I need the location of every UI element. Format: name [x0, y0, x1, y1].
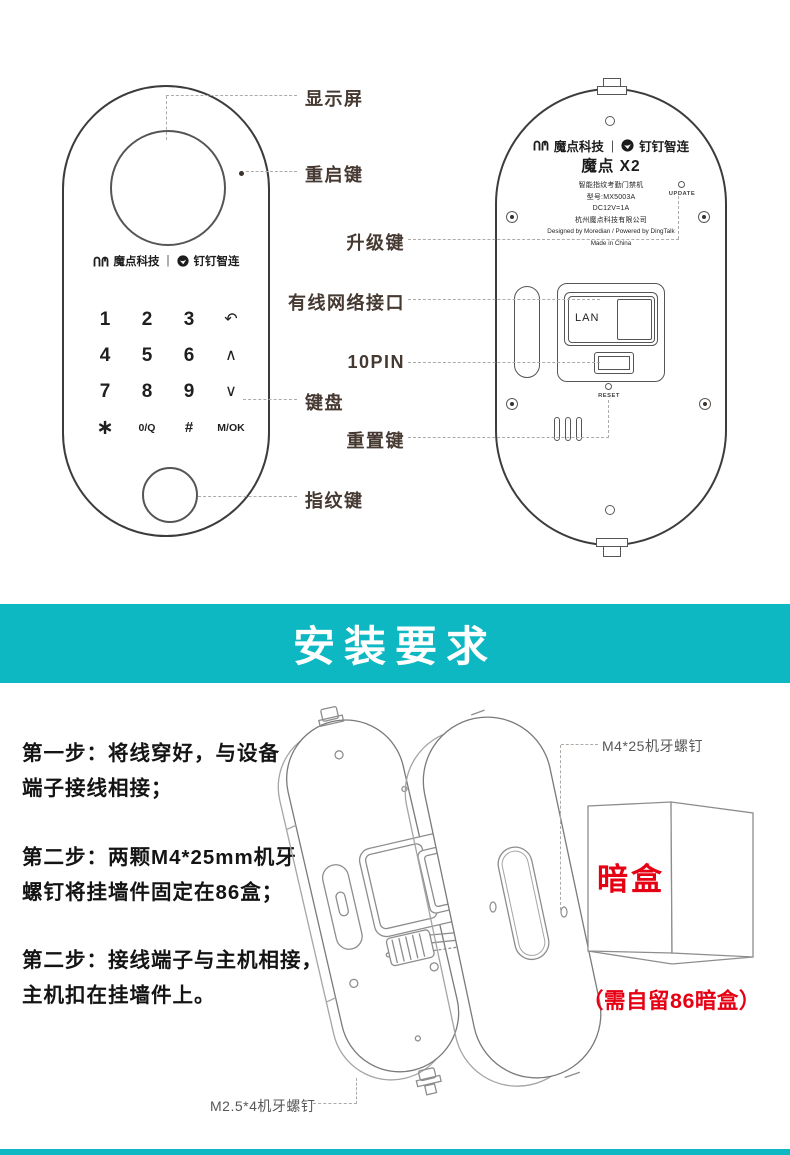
restart-callout-line [246, 171, 297, 172]
camera-display-circle [110, 130, 226, 246]
step-1: 第一步：将线穿好，与设备 端子接线相接； [22, 737, 280, 806]
step-3-line-2: 主机扣在挂墙件上。 [22, 984, 216, 1007]
m25-screw-line-h [313, 1103, 357, 1104]
brand-separator: | [167, 255, 170, 267]
back-device: 魔点科技 | 钉钉智连 魔点 X2 智能指纹考勤门禁机 型号:MX5003A D… [495, 88, 727, 546]
bottom-mount-tab [603, 546, 621, 557]
lan-port: LAN [564, 292, 658, 346]
upgrade-callout-line-v [678, 196, 679, 239]
back-brand-row: 魔点科技 | 钉钉智连 [497, 136, 725, 155]
key-7: 7 [84, 374, 126, 410]
reset-hole [605, 383, 612, 390]
banner-title: 安装要求 [293, 613, 497, 674]
lan-port-socket [617, 299, 652, 340]
ethernet-callout-line [408, 299, 600, 300]
step-3-line-1: 第二步：接线端子与主机相接， [22, 949, 323, 972]
front-device: 魔点科技 | 钉钉智连 1 2 3 ↶ 4 5 6 ∧ 7 8 9 ∨ ∗ 0/… [62, 85, 270, 537]
m25-screw-label: M2.5*4机牙螺钉 [210, 1096, 315, 1116]
reset-label: RESET [593, 393, 625, 399]
brand-separator: | [611, 139, 614, 153]
key-3: 3 [168, 302, 210, 338]
callout-display: 显示屏 [305, 85, 364, 111]
fingerprint-callout-line [198, 496, 297, 497]
dingtalk-logo-icon [621, 139, 634, 152]
top-mount-tab-flange [597, 86, 627, 95]
brand-dingtalk: 钉钉智连 [194, 253, 240, 269]
step-3: 第二步：接线端子与主机相接， 主机扣在挂墙件上。 [22, 944, 323, 1013]
step-1-line-1: 第一步：将线穿好，与设备 [22, 742, 280, 765]
info-line: Designed by Moredian / Powered by DingTa… [497, 226, 725, 238]
upgrade-callout-line-h [408, 239, 679, 240]
key-hash: # [168, 410, 210, 446]
junction-box-note: （需自留86暗盒） [582, 984, 761, 1015]
m25-screw-line-v [356, 1078, 357, 1104]
bottom-screw-hole [605, 505, 615, 515]
info-line: DC12V=1A [497, 203, 725, 215]
update-label: UPDATE [663, 191, 701, 197]
callout-restart: 重启键 [305, 161, 364, 187]
front-brand-row: 魔点科技 | 钉钉智连 [64, 253, 268, 269]
callout-fingerprint: 指纹键 [305, 487, 364, 513]
restart-hole [239, 171, 244, 176]
display-callout-line-h [166, 95, 297, 96]
lan-panel: LAN [557, 283, 665, 382]
keypad: 1 2 3 ↶ 4 5 6 ∧ 7 8 9 ∨ ∗ 0/Q # M/OK [84, 302, 252, 446]
key-star: ∗ [84, 410, 126, 446]
key-8: 8 [126, 374, 168, 410]
update-hole [678, 181, 685, 188]
model-title: 魔点 X2 [497, 154, 725, 176]
step-1-line-2: 端子接线相接； [22, 777, 173, 800]
top-screw-hole [605, 116, 615, 126]
lower-left-screw-center [510, 402, 514, 406]
step-2-line-2: 螺钉将挂墙件固定在86盒； [22, 881, 283, 904]
key-back: ↶ [210, 302, 252, 338]
upper-left-screw-center [510, 215, 514, 219]
key-1: 1 [84, 302, 126, 338]
reset-callout-line-h [408, 437, 609, 438]
key-6: 6 [168, 338, 210, 374]
brand-moredian: 魔点科技 [554, 136, 604, 155]
section-banner: 安装要求 [0, 604, 790, 683]
key-mok: M/OK [210, 410, 252, 446]
brand-dingtalk: 钉钉智连 [639, 136, 689, 155]
m4-screw-label: M4*25机牙螺钉 [602, 736, 703, 756]
mounting-diagram [280, 698, 600, 1098]
key-9: 9 [168, 374, 210, 410]
lan-label: LAN [575, 312, 599, 324]
callout-upgrade: 升级键 [300, 229, 405, 255]
key-up: ∧ [210, 338, 252, 374]
step-2: 第二步：两颗M4*25mm机牙 螺钉将挂墙件固定在86盒； [22, 841, 297, 910]
key-down: ∨ [210, 374, 252, 410]
m4-screw-line-v [560, 745, 561, 910]
step-2-line-1: 第二步：两颗M4*25mm机牙 [22, 846, 297, 869]
upper-right-screw-center [702, 215, 706, 219]
brand-moredian: 魔点科技 [114, 253, 160, 269]
key-2: 2 [126, 302, 168, 338]
moredian-logo-icon [93, 256, 109, 267]
callout-ethernet: 有线网络接口 [250, 289, 405, 315]
callout-pin10: 10PIN [280, 352, 405, 373]
key-5: 5 [126, 338, 168, 374]
callout-reset: 重置键 [300, 427, 405, 453]
key-0: 0/Q [126, 410, 168, 446]
reset-callout-line-v [608, 400, 609, 438]
info-line: 杭州魔点科技有限公司 [497, 215, 725, 227]
keyboard-callout-line [243, 399, 297, 400]
bottom-section-strip [0, 1149, 790, 1155]
m4-screw-line-h [561, 744, 598, 745]
display-callout-line-v [166, 96, 167, 140]
pin10-connector-inner [598, 356, 630, 370]
key-4: 4 [84, 338, 126, 374]
dingtalk-logo-icon [177, 255, 189, 267]
junction-box-label: 暗盒 [597, 854, 665, 899]
moredian-logo-icon [533, 140, 549, 151]
info-line: 智能指纹考勤门禁机 [497, 180, 725, 192]
lower-right-screw-center [703, 402, 707, 406]
page: 魔点科技 | 钉钉智连 1 2 3 ↶ 4 5 6 ∧ 7 8 9 ∨ ∗ 0/… [0, 0, 790, 1155]
pin10-connector [594, 352, 634, 374]
fingerprint-circle [142, 467, 198, 523]
pin10-callout-line [408, 362, 600, 363]
callout-keyboard: 键盘 [305, 389, 344, 415]
